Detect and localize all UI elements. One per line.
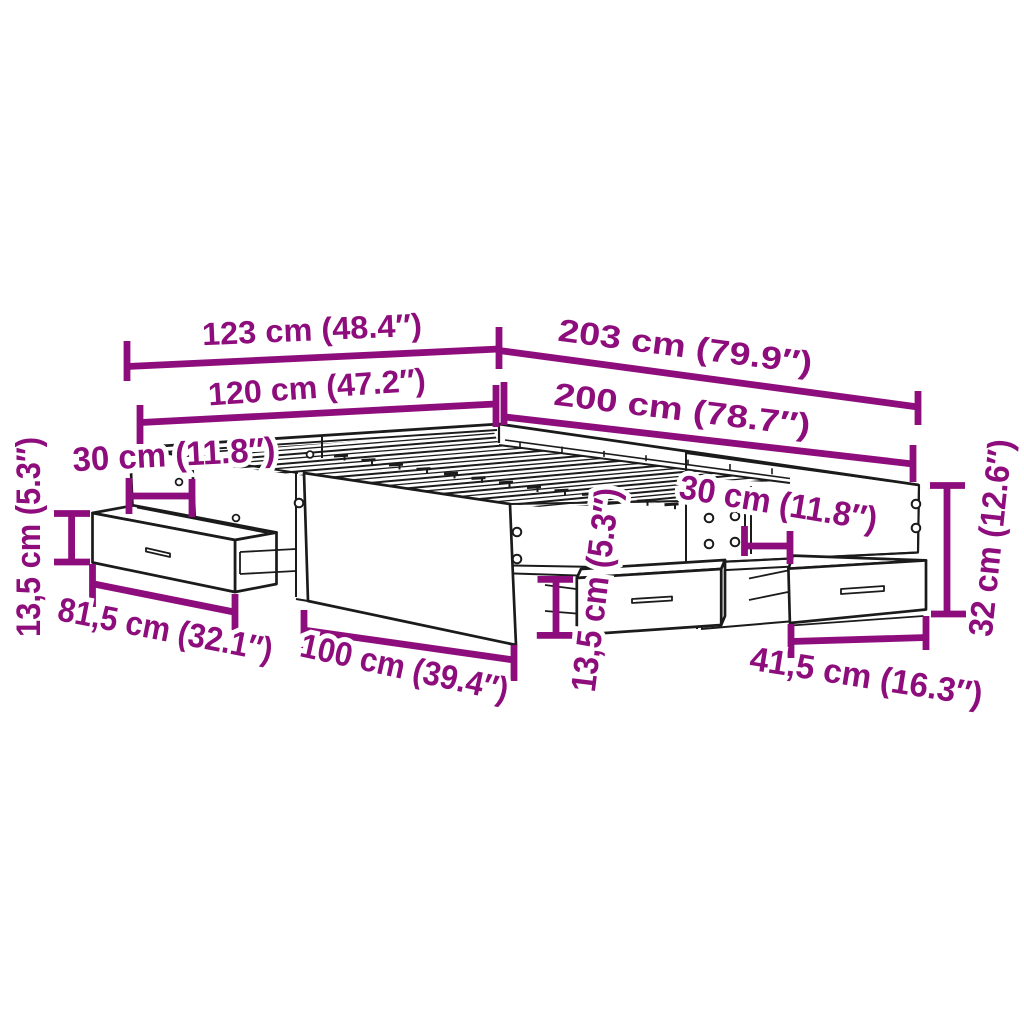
svg-text:13,5 cm (5.3″): 13,5 cm (5.3″): [10, 437, 48, 637]
